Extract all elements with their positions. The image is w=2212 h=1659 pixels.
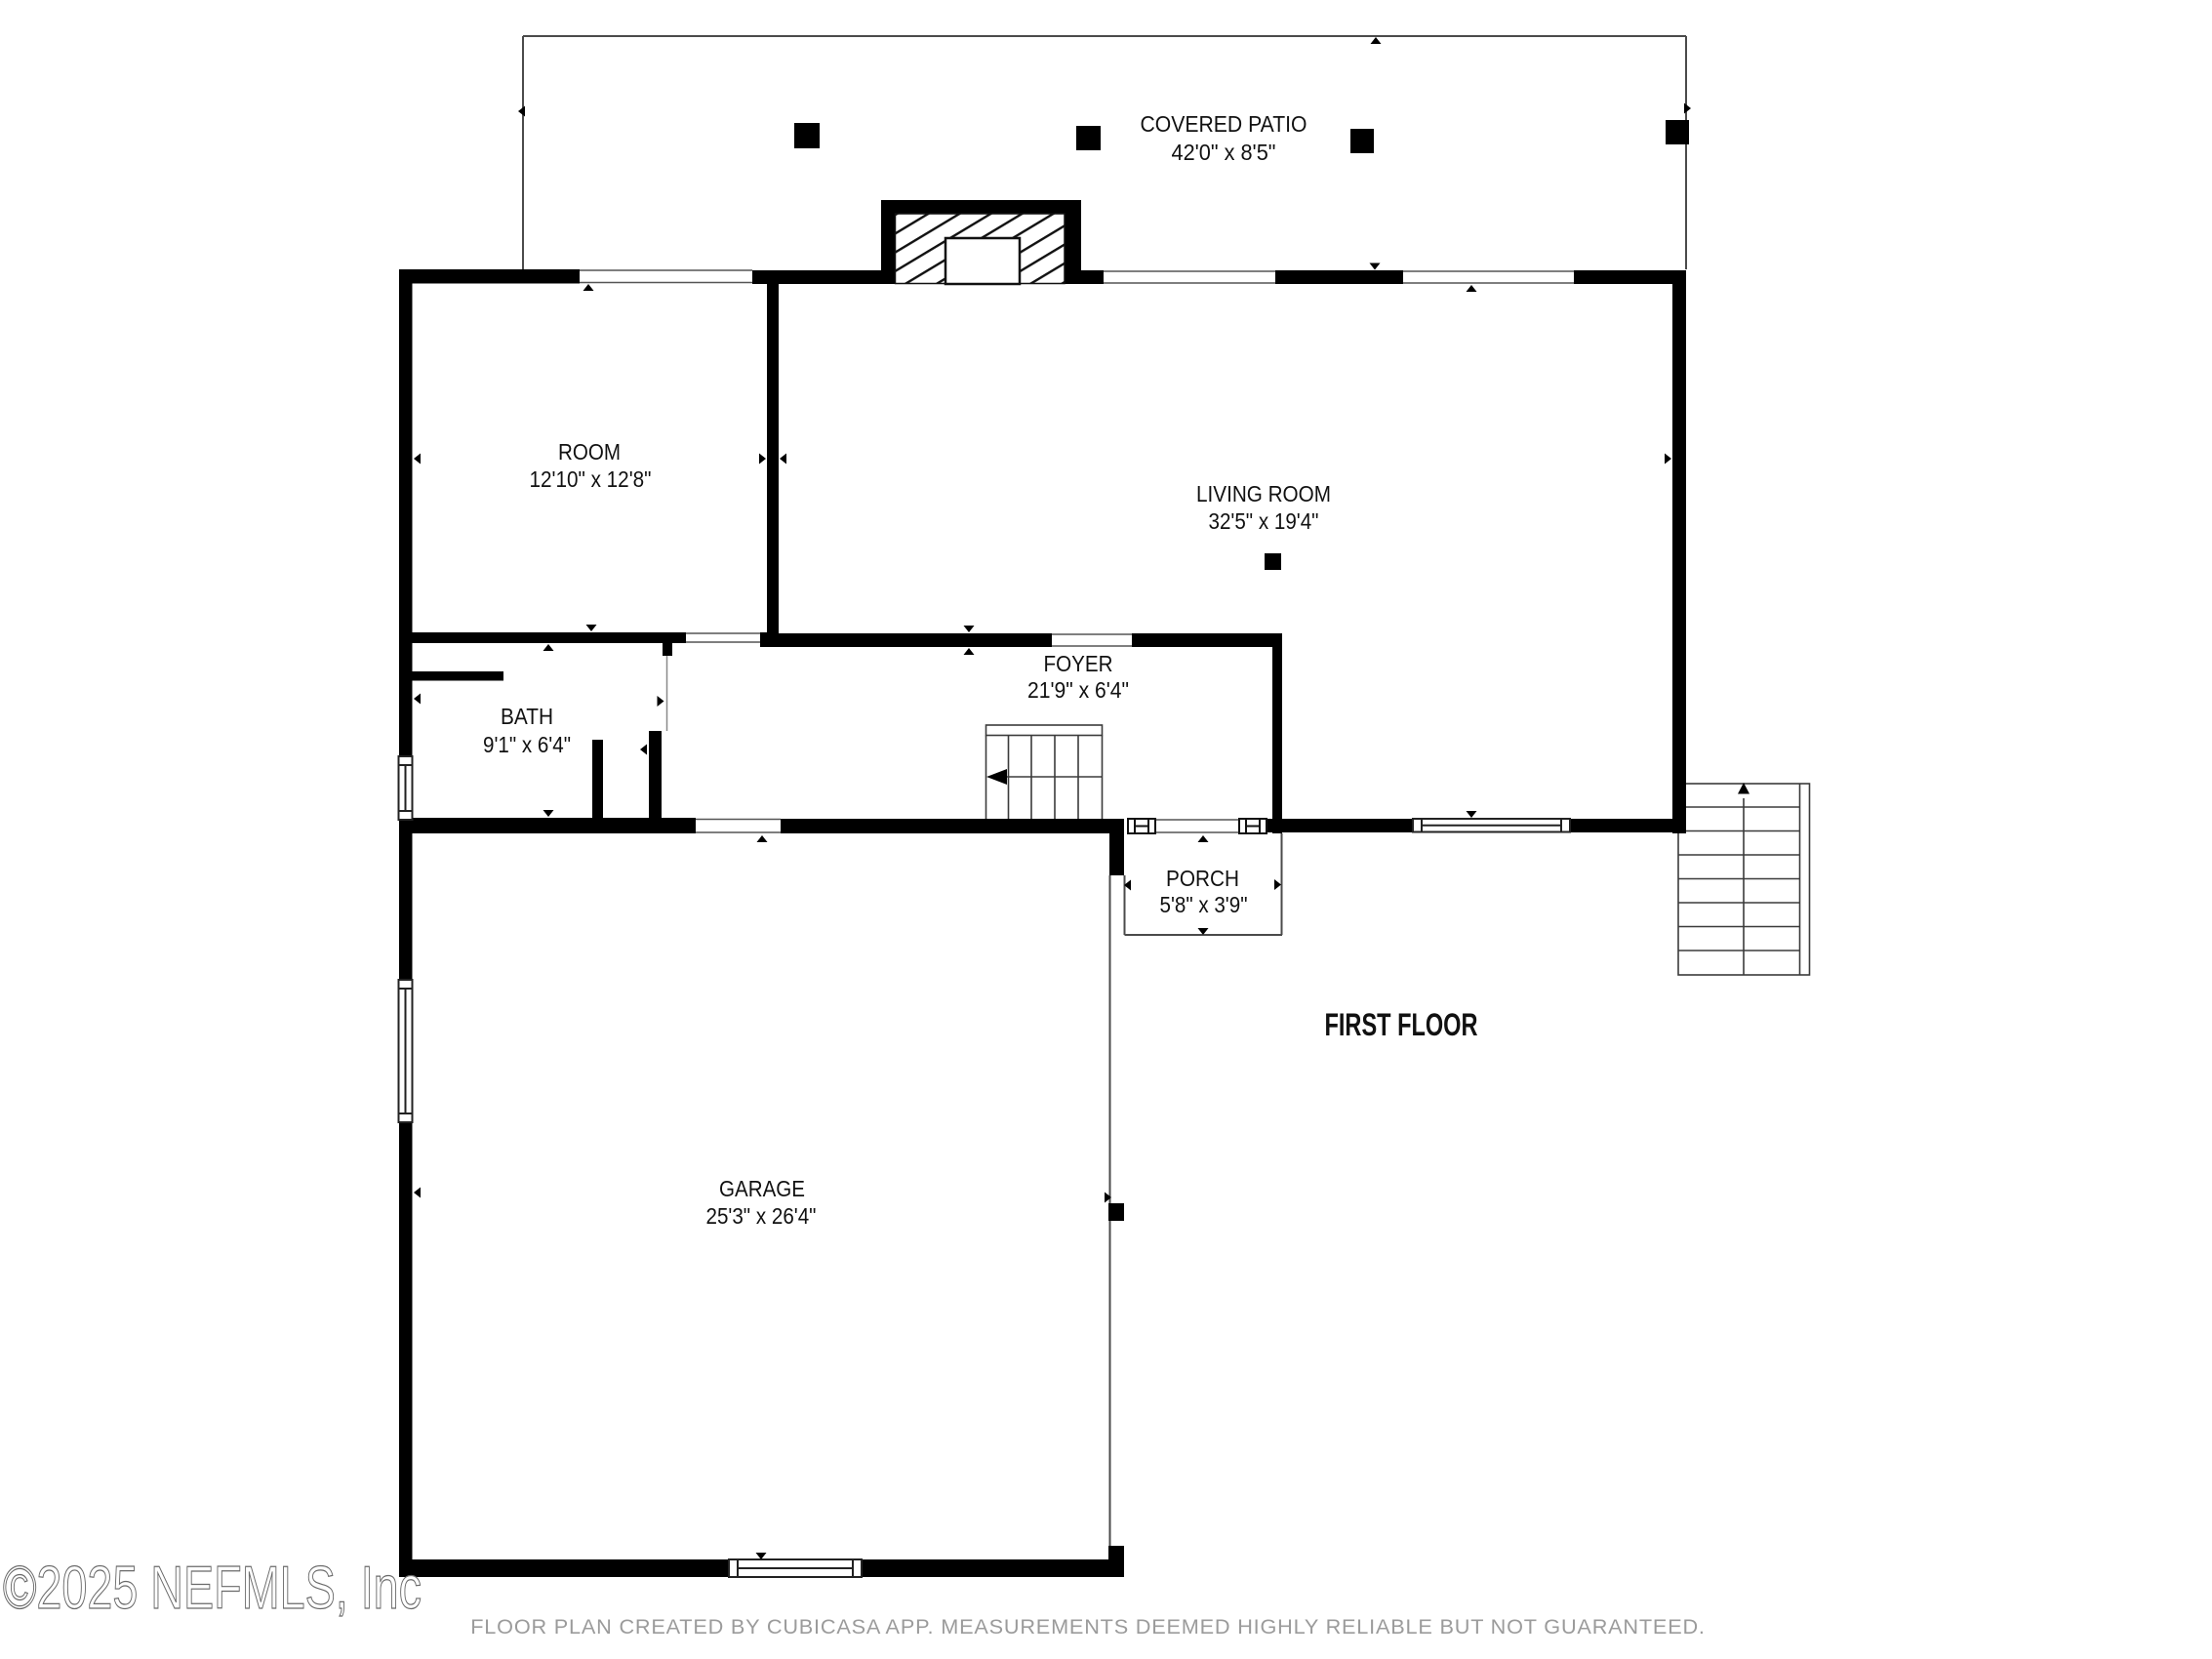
svg-text:42'0" x 8'5": 42'0" x 8'5": [1172, 140, 1276, 165]
svg-text:LIVING ROOM: LIVING ROOM: [1196, 481, 1331, 506]
svg-text:25'3" x 26'4": 25'3" x 26'4": [706, 1203, 817, 1229]
svg-text:©2025 NEFMLS, Inc: ©2025 NEFMLS, Inc: [3, 1555, 422, 1622]
svg-text:GARAGE: GARAGE: [719, 1176, 805, 1201]
svg-text:BATH: BATH: [501, 704, 553, 729]
svg-text:32'5" x 19'4": 32'5" x 19'4": [1209, 508, 1319, 534]
svg-text:COVERED PATIO: COVERED PATIO: [1141, 111, 1307, 137]
svg-text:FIRST FLOOR: FIRST FLOOR: [1325, 1007, 1478, 1042]
svg-text:PORCH: PORCH: [1166, 866, 1239, 891]
svg-text:12'10" x 12'8": 12'10" x 12'8": [530, 466, 652, 492]
svg-text:9'1" x 6'4": 9'1" x 6'4": [483, 732, 571, 757]
svg-text:FLOOR PLAN CREATED BY CUBICASA: FLOOR PLAN CREATED BY CUBICASA APP. MEAS…: [470, 1614, 1706, 1639]
svg-text:FOYER: FOYER: [1044, 651, 1113, 676]
svg-text:21'9" x 6'4": 21'9" x 6'4": [1027, 677, 1129, 703]
svg-text:5'8" x 3'9": 5'8" x 3'9": [1160, 892, 1248, 917]
svg-text:ROOM: ROOM: [558, 439, 621, 465]
